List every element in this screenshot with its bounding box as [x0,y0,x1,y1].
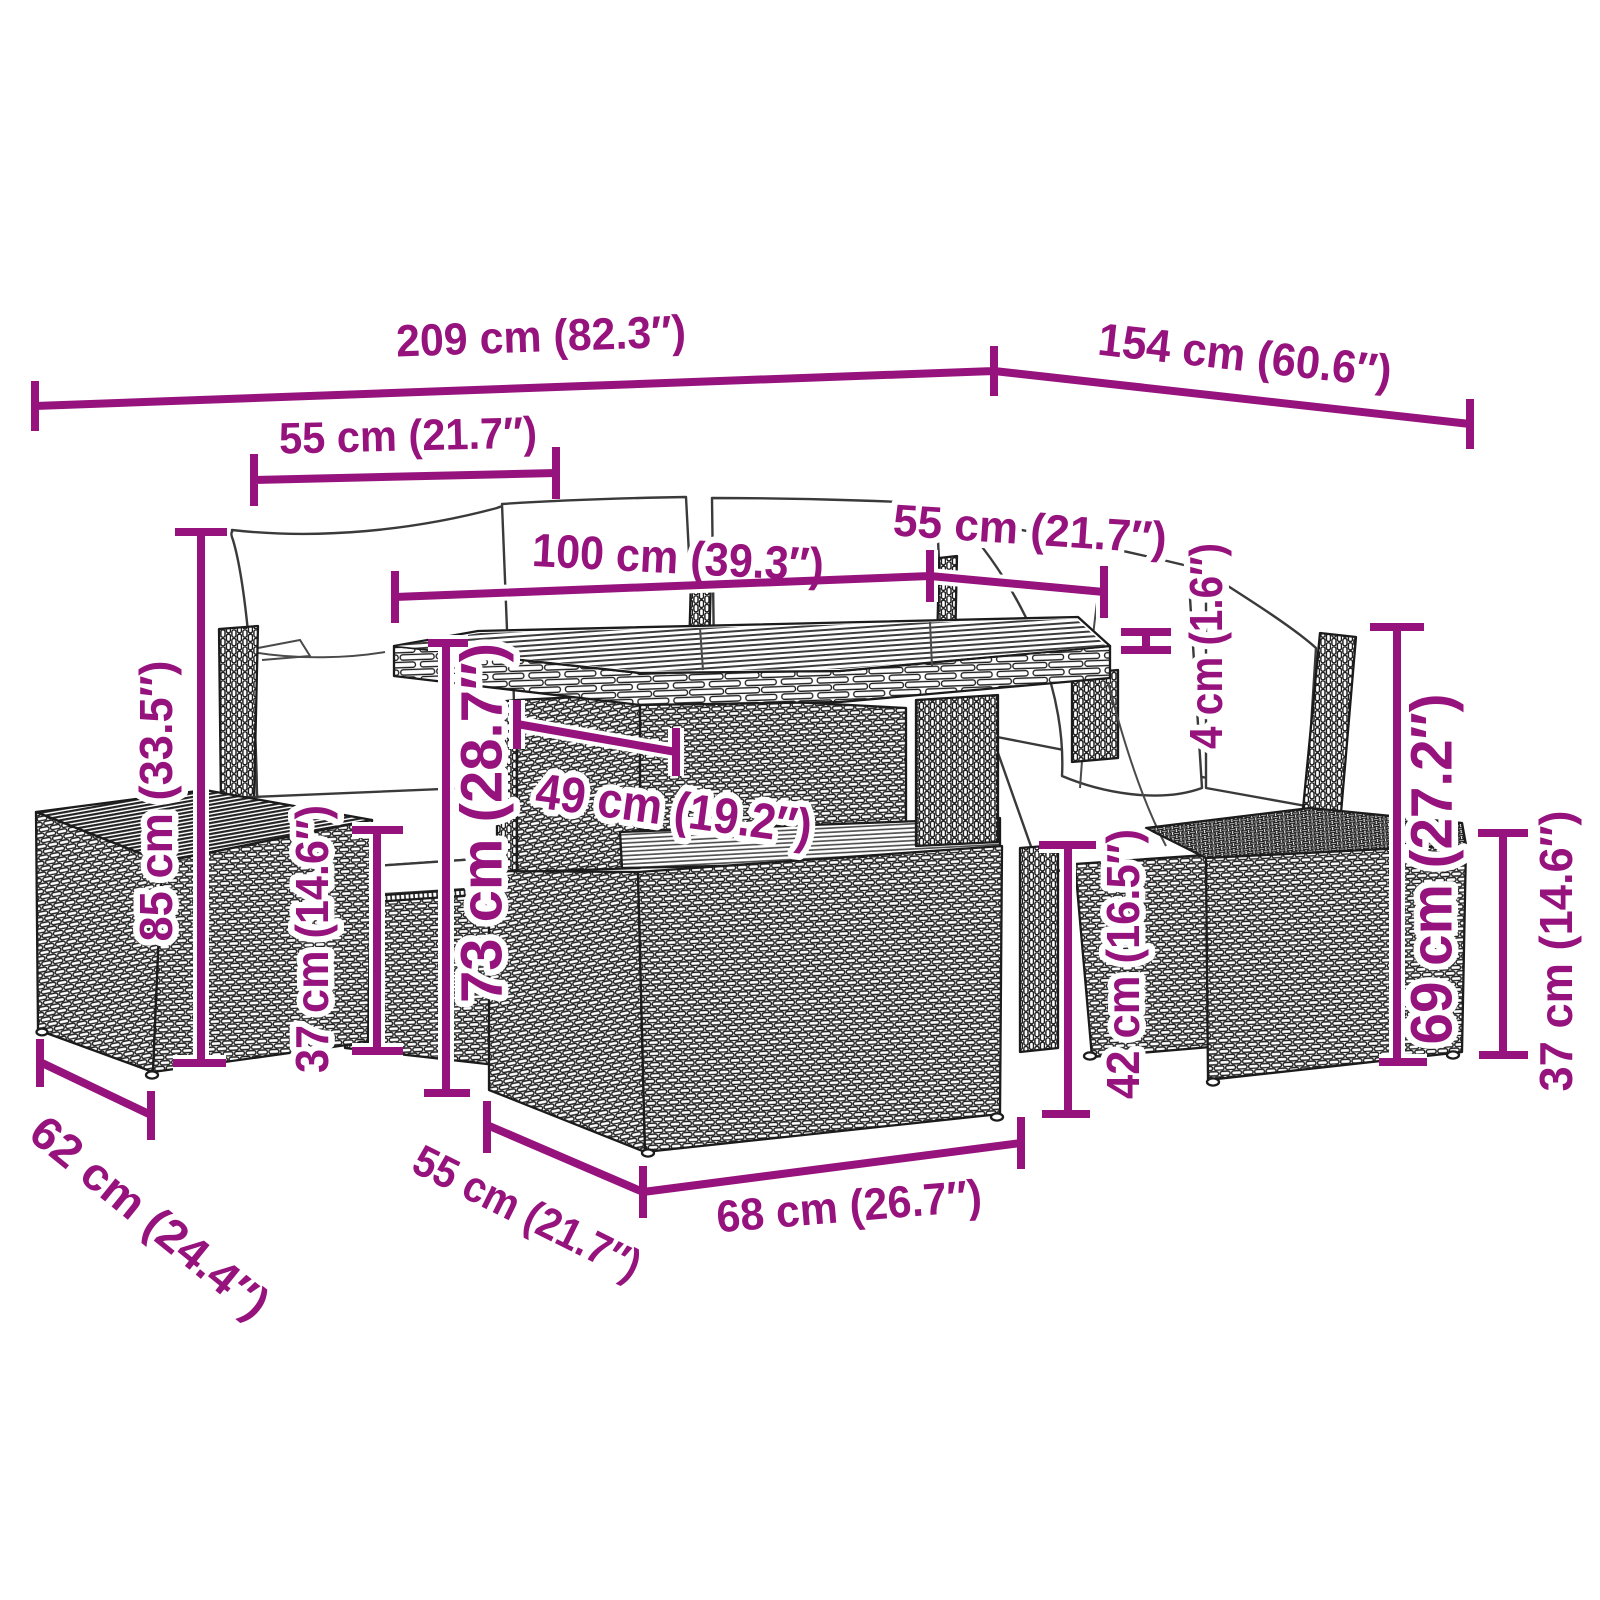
svg-text:4 cm (1.6″): 4 cm (1.6″) [1180,543,1232,749]
svg-text:37 cm (14.6″): 37 cm (14.6″) [1530,811,1582,1092]
svg-text:73 cm (28.7″): 73 cm (28.7″) [450,643,515,1003]
svg-text:55 cm (21.7″): 55 cm (21.7″) [278,408,537,463]
svg-text:69 cm (27.2″): 69 cm (27.2″) [1400,694,1465,1045]
svg-text:37 cm (14.6″): 37 cm (14.6″) [286,805,338,1073]
svg-text:85 cm (33.5″): 85 cm (33.5″) [130,661,182,942]
svg-text:42 cm (16.5″): 42 cm (16.5″) [1097,829,1149,1099]
svg-text:209 cm (82.3″): 209 cm (82.3″) [395,305,687,366]
